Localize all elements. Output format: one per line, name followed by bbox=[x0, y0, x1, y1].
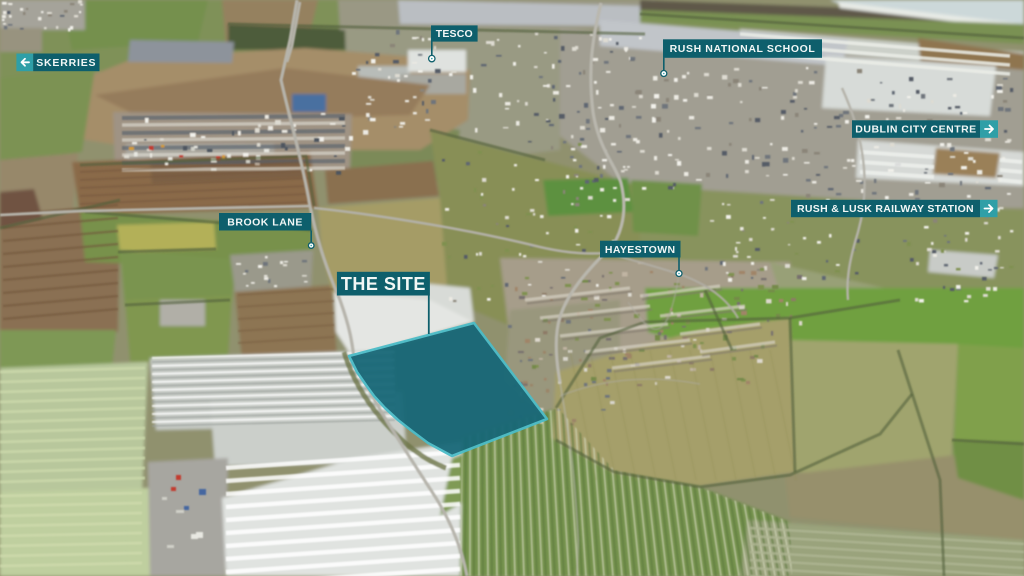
svg-text:DUBLIN CITY CENTRE: DUBLIN CITY CENTRE bbox=[855, 124, 976, 136]
svg-text:BROOK LANE: BROOK LANE bbox=[227, 216, 303, 228]
svg-text:TESCO: TESCO bbox=[436, 28, 473, 40]
svg-text:SKERRIES: SKERRIES bbox=[36, 57, 96, 69]
svg-text:HAYESTOWN: HAYESTOWN bbox=[605, 244, 676, 256]
svg-text:THE SITE: THE SITE bbox=[341, 274, 426, 294]
svg-text:RUSH & LUSK RAILWAY STATION: RUSH & LUSK RAILWAY STATION bbox=[797, 203, 974, 215]
svg-text:RUSH NATIONAL SCHOOL: RUSH NATIONAL SCHOOL bbox=[670, 43, 816, 55]
